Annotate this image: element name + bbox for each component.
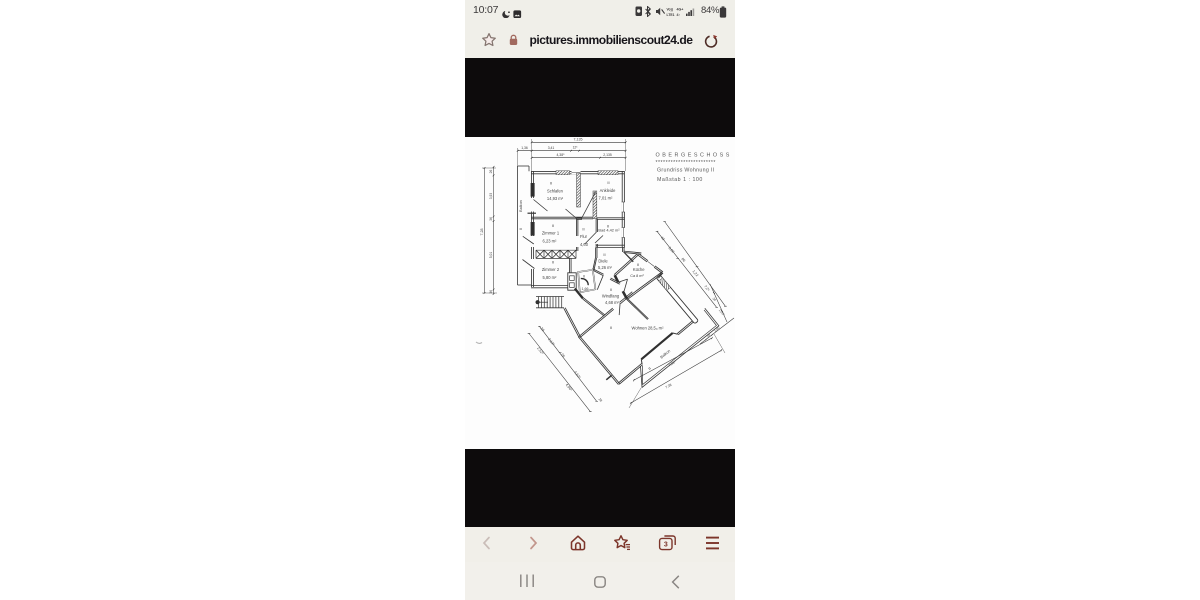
svg-text:Vo)): Vo)): [667, 8, 673, 12]
svg-text:Schlafen: Schlafen: [547, 188, 564, 193]
svg-text:7,135: 7,135: [574, 137, 583, 141]
svg-text:4,96⁵: 4,96⁵: [565, 382, 574, 392]
svg-text:Maßstab 1 : 100: Maßstab 1 : 100: [657, 177, 703, 183]
svg-text:4,68 m²: 4,68 m²: [605, 300, 620, 305]
svg-text:II: II: [552, 223, 554, 228]
svg-text:28: 28: [598, 397, 604, 403]
svg-text:4,60: 4,60: [580, 241, 589, 246]
svg-text:5,26 m²: 5,26 m²: [598, 265, 613, 270]
svg-text:Balkon: Balkon: [659, 348, 671, 359]
svg-text:2,135: 2,135: [603, 153, 612, 157]
svg-text:5,80 m²: 5,80 m²: [543, 274, 558, 279]
svg-text:II: II: [610, 325, 612, 330]
svg-text:36: 36: [489, 216, 493, 220]
svg-text:6,23 m²: 6,23 m²: [543, 238, 558, 243]
svg-text:Balkon: Balkon: [519, 200, 523, 212]
svg-text:Flur: Flur: [580, 234, 588, 239]
svg-text:3,93: 3,93: [489, 192, 493, 199]
svg-text:LTE1: LTE1: [667, 13, 675, 17]
svg-text:5,01: 5,01: [489, 251, 493, 258]
svg-text:Diele: Diele: [598, 258, 608, 263]
svg-text:38: 38: [706, 332, 711, 337]
svg-text:II: II: [552, 259, 554, 264]
svg-text:7,28: 7,28: [480, 228, 484, 235]
svg-text:36: 36: [712, 296, 717, 301]
svg-text:Ca 8 m²: Ca 8 m²: [630, 274, 644, 278]
svg-text:1,66: 1,66: [582, 286, 589, 290]
svg-text:40: 40: [660, 235, 666, 241]
svg-text:II: II: [583, 274, 585, 278]
svg-text:4↑: 4↑: [677, 13, 681, 17]
svg-text:7,38: 7,38: [665, 382, 673, 389]
svg-text:OBERGESCHOSS: OBERGESCHOSS: [656, 152, 732, 158]
svg-text:II: II: [607, 180, 609, 185]
svg-text:Wohnen 28,5₀ m²: Wohnen 28,5₀ m²: [632, 325, 665, 330]
svg-text:28: 28: [560, 352, 566, 358]
svg-text:Windfang: Windfang: [602, 293, 620, 298]
svg-text:Küche: Küche: [633, 267, 645, 272]
svg-text:12⁵: 12⁵: [573, 145, 579, 149]
svg-text:14,93 m²: 14,93 m²: [547, 196, 564, 201]
svg-text:7,01 m²: 7,01 m²: [599, 195, 614, 200]
svg-text:2,13⁵: 2,13⁵: [547, 337, 556, 347]
svg-text:4G+: 4G+: [677, 8, 684, 12]
svg-text:3: 3: [664, 542, 668, 549]
svg-text:1,00: 1,00: [713, 325, 720, 332]
svg-text:28: 28: [539, 326, 545, 332]
svg-text:4,38⁵: 4,38⁵: [556, 153, 565, 157]
svg-text:1,36: 1,36: [521, 146, 528, 150]
svg-text:Zimmer 1: Zimmer 1: [542, 230, 560, 235]
svg-text:Zimmer 2: Zimmer 2: [542, 267, 560, 272]
svg-text:II: II: [610, 287, 612, 292]
svg-text:1,00⁵: 1,00⁵: [718, 308, 726, 317]
svg-text:II: II: [647, 365, 652, 370]
svg-text:II: II: [582, 226, 584, 231]
svg-text:II: II: [603, 252, 605, 257]
svg-text:Grundriss Wohnung II: Grundriss Wohnung II: [657, 167, 714, 173]
svg-text:II: II: [550, 180, 552, 185]
svg-text:4,62⁵: 4,62⁵: [573, 370, 582, 380]
svg-text:************************: ************************: [656, 159, 716, 165]
svg-text:3,41: 3,41: [548, 146, 555, 150]
svg-text:26: 26: [489, 169, 493, 173]
svg-text:II: II: [519, 227, 523, 229]
svg-text:Ankleide: Ankleide: [600, 188, 616, 193]
svg-text:2,52⁵: 2,52⁵: [536, 346, 545, 356]
svg-text:Bad 4,42 m²: Bad 4,42 m²: [598, 227, 620, 232]
svg-text:1,22: 1,22: [691, 269, 699, 277]
